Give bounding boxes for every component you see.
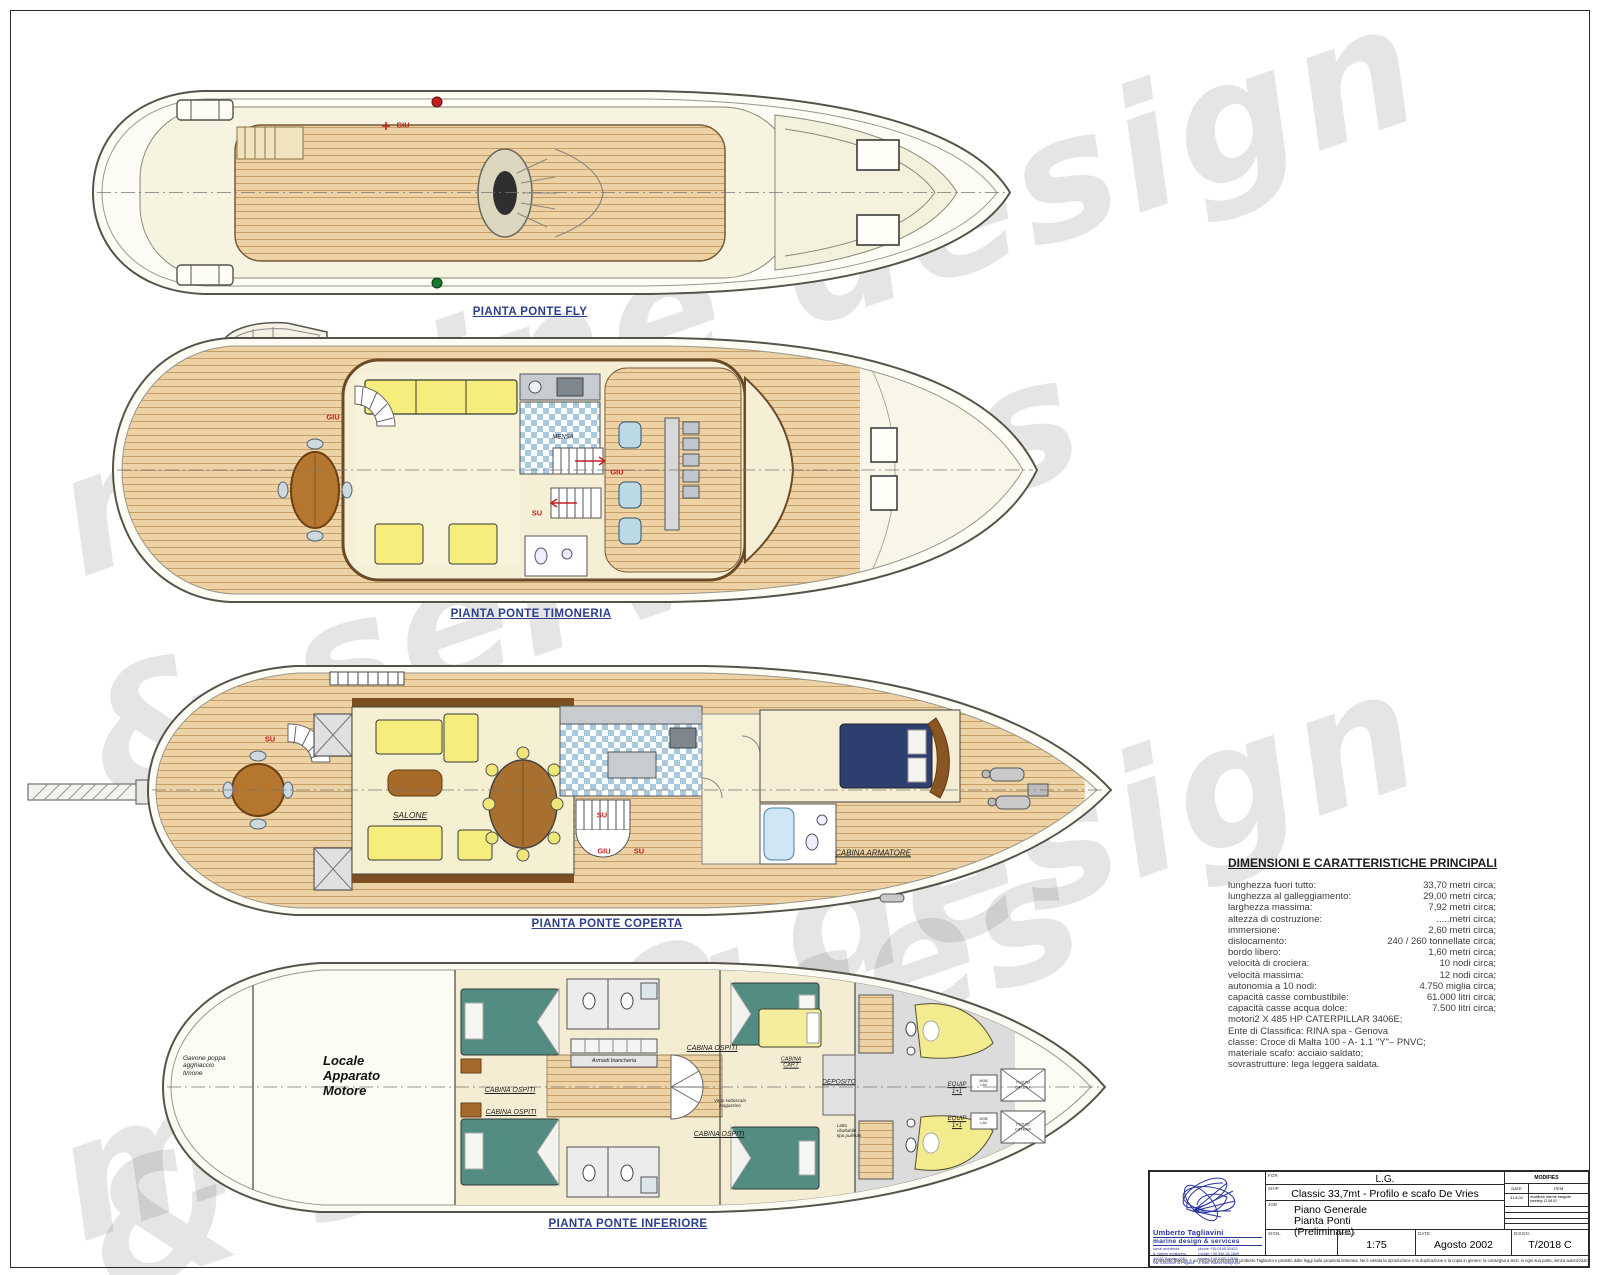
guest-cabin-label: CABINA OSPITI bbox=[687, 1045, 738, 1053]
captain-cabin-label: CABINA CAP.T bbox=[781, 1057, 801, 1070]
bathtub bbox=[764, 808, 794, 860]
date-value: Agosto 2002 bbox=[1416, 1230, 1511, 1251]
main-deck-graphic bbox=[140, 658, 1120, 923]
helm-chair bbox=[619, 482, 641, 508]
fly-bridge-cockpit bbox=[235, 125, 725, 261]
shower bbox=[641, 1177, 657, 1193]
copyright-fine-print: Il presente disegno è ad esclusiva propr… bbox=[1150, 1255, 1588, 1266]
logo-tagline: marine design & services bbox=[1153, 1238, 1262, 1246]
pillow bbox=[465, 1003, 483, 1039]
guest-cabin-label: CABINA OSPITI bbox=[485, 1087, 536, 1095]
dimensions-title: DIMENSIONI E CARATTERISTICHE PRINCIPALI bbox=[1228, 856, 1496, 870]
sign-cell: SIGN. bbox=[1266, 1230, 1338, 1255]
washbasin bbox=[817, 815, 827, 825]
stair-label-giu: GIU bbox=[396, 122, 409, 131]
stove bbox=[557, 378, 583, 396]
storage-label: DEPOSITO bbox=[822, 1078, 855, 1085]
logo-cell: Umberto Tagliavini marine design & servi… bbox=[1150, 1172, 1266, 1255]
date-cell: DATE Agosto 2002 bbox=[1416, 1230, 1512, 1255]
dimension-row: larghezza massima:7,92 metri circa; bbox=[1228, 902, 1496, 913]
shower bbox=[641, 983, 657, 999]
sink bbox=[529, 381, 541, 393]
crew-label: EQUIP 1+1 bbox=[948, 1116, 967, 1130]
roof-hatch bbox=[857, 215, 899, 245]
crew-bunk bbox=[859, 1121, 893, 1179]
toilet bbox=[906, 1138, 916, 1152]
pullman-berth-label: Letto ribaltabile tipo pullman bbox=[837, 1123, 861, 1139]
main-deck-plan: SU SU GIU SU SALONE CABINA ARMATORE bbox=[140, 658, 1120, 923]
guest-cabin-label: CABINA OSPITI bbox=[694, 1131, 745, 1139]
day-head bbox=[525, 536, 587, 576]
winch bbox=[996, 796, 1030, 809]
crew-bunk bbox=[859, 995, 893, 1053]
winch bbox=[990, 768, 1024, 781]
helm-chair bbox=[619, 518, 641, 544]
lower-deck-caption: PIANTA PONTE INFERIORE bbox=[549, 1218, 708, 1230]
dimension-row: dislocamento:240 / 260 tonnellate circa; bbox=[1228, 936, 1496, 947]
stair-label-su: SU bbox=[597, 812, 607, 821]
client-value: L.G. bbox=[1266, 1172, 1504, 1185]
coffee-table bbox=[388, 770, 442, 796]
dimension-row: lunghezza al galleggiamento:29,00 metri … bbox=[1228, 891, 1496, 902]
nautilus-logo-icon bbox=[1153, 1173, 1261, 1223]
stair-label-giu: GIU bbox=[326, 414, 339, 423]
master-cabin bbox=[760, 710, 960, 802]
nightstand bbox=[461, 1059, 481, 1073]
roof-hatch bbox=[857, 140, 899, 170]
stair-label-su: SU bbox=[265, 736, 275, 745]
washbasin bbox=[907, 1119, 915, 1127]
fly-deck-plan: GIU bbox=[85, 85, 1015, 300]
toilet bbox=[583, 993, 595, 1009]
galley-area bbox=[560, 706, 702, 796]
ship-cell: SHIP Classic 33,7mt - Profilo e scafo De… bbox=[1266, 1185, 1504, 1201]
starboard-navigation-light bbox=[432, 278, 442, 288]
dimension-row: capacità casse combustibile:61.000 litri… bbox=[1228, 992, 1496, 1003]
dimension-row: bordo libero:1,60 metri circa; bbox=[1228, 947, 1496, 958]
main-deck-caption: PIANTA PONTE COPERTA bbox=[532, 918, 683, 930]
drawing-sheet: marine design & services marine design &… bbox=[0, 0, 1600, 1275]
dimension-row: velocità massima:12 nodi circa; bbox=[1228, 970, 1496, 981]
dimensions-block: DIMENSIONI E CARATTERISTICHE PRINCIPALI … bbox=[1228, 856, 1496, 1070]
washbasin bbox=[907, 1047, 915, 1055]
pillow bbox=[465, 1133, 483, 1169]
pillow bbox=[799, 1141, 815, 1175]
dimension-notes: motori2 X 485 HP CATERPILLAR 3406E; Ente… bbox=[1228, 1014, 1496, 1070]
mess-label: MENSA bbox=[552, 435, 573, 442]
fly-deck-caption: PIANTA PONTE FLY bbox=[473, 306, 588, 318]
railing bbox=[330, 672, 404, 685]
pillow bbox=[923, 1133, 939, 1153]
helm-chair bbox=[619, 422, 641, 448]
dimension-row: capacità casse acqua dolce:7.500 litri c… bbox=[1228, 1003, 1496, 1014]
salon-area bbox=[352, 698, 574, 883]
modification-row: 31.8.02 modifiche interne eseguite meeti… bbox=[1505, 1194, 1588, 1207]
console bbox=[665, 418, 679, 530]
guest-cabin-label: CABINA OSPITI bbox=[486, 1109, 537, 1117]
stair-label-giu: GIU bbox=[597, 848, 610, 857]
nightstand bbox=[461, 1103, 481, 1117]
chain-locker-label: POZZO CATENA bbox=[1015, 1122, 1031, 1131]
cleat bbox=[880, 894, 904, 902]
wheelhouse-deck-plan: GIU GIU SU MENSA bbox=[105, 330, 1045, 610]
stair-label-giu: GIU bbox=[610, 469, 623, 478]
stair-label-su: SU bbox=[532, 510, 542, 519]
stove bbox=[670, 728, 696, 748]
dimension-row: velocità di crociera:10 nodi circa; bbox=[1228, 958, 1496, 969]
scale-cell: SCALE 1:75 bbox=[1338, 1230, 1416, 1255]
toilet bbox=[621, 1165, 633, 1181]
armchair bbox=[449, 524, 497, 564]
modifies-table: MODIFIES DATE ITEM 31.8.02 modifiche int… bbox=[1504, 1172, 1588, 1229]
owner-cabin-label: CABINA ARMATORE bbox=[835, 848, 911, 857]
dimension-row: lunghezza fuori tutto:33,70 metri circa; bbox=[1228, 880, 1496, 891]
lower-deck-graphic bbox=[155, 955, 1115, 1220]
drawing-number-cell: DISGN. T/2018 C bbox=[1512, 1230, 1588, 1255]
dimension-row: autonomia a 10 nodi:4.750 miglia circa; bbox=[1228, 981, 1496, 992]
pillow bbox=[908, 730, 926, 754]
engine-room-label: Locale Apparato Motore bbox=[323, 1053, 380, 1098]
pillow bbox=[807, 1013, 819, 1043]
wheelhouse-deck-caption: PIANTA PONTE TIMONERIA bbox=[451, 608, 612, 620]
salon-label: SALONE bbox=[393, 811, 428, 821]
pillow bbox=[908, 758, 926, 782]
sofa bbox=[368, 826, 442, 860]
sofa bbox=[376, 720, 442, 754]
ship-value: Classic 33,7mt - Profilo e scafo De Vrie… bbox=[1266, 1185, 1504, 1200]
toilet bbox=[583, 1165, 595, 1181]
stern-peak-label: Gavone poppa agghiaccio timone bbox=[183, 1055, 226, 1077]
toilet bbox=[806, 834, 818, 850]
fly-stairs bbox=[237, 127, 303, 159]
dimension-row: altezza di costruzione:.....metri circa; bbox=[1228, 914, 1496, 925]
port-navigation-light bbox=[432, 97, 442, 107]
sofa bbox=[444, 714, 478, 762]
toilet bbox=[621, 993, 633, 1009]
lobby-corridor bbox=[702, 714, 760, 864]
armchair bbox=[375, 524, 423, 564]
toilet bbox=[906, 1022, 916, 1036]
understairs-label: Vano sottoscala magazzino bbox=[714, 1098, 746, 1108]
fly-deck-graphic bbox=[85, 85, 1015, 300]
washbasin bbox=[562, 549, 572, 559]
lower-deck-plan: Gavone poppa agghiaccio timone Locale Ap… bbox=[155, 955, 1115, 1220]
for-cell: FOR L.G. bbox=[1266, 1172, 1504, 1185]
master-bathroom bbox=[760, 804, 836, 864]
toilet bbox=[535, 548, 547, 564]
galley-island bbox=[608, 752, 656, 778]
stair-label-su: SU bbox=[634, 848, 644, 857]
pillow bbox=[923, 1021, 939, 1041]
crew-label: EQUIP 1+1 bbox=[948, 1082, 967, 1096]
title-block: Umberto Tagliavini marine design & servi… bbox=[1148, 1170, 1590, 1268]
linen-label: Armadi biancheria bbox=[592, 1058, 636, 1064]
cabinet-label: MOB. LAV. bbox=[980, 1079, 989, 1087]
wheelhouse-deck-graphic bbox=[105, 330, 1045, 610]
chain-locker-label: POZZO CATENA bbox=[1015, 1080, 1031, 1089]
cabinet-label: MOB. LAV. bbox=[980, 1117, 989, 1125]
logo-name: Umberto Tagliavini bbox=[1153, 1228, 1262, 1238]
dimension-row: immersione:2,60 metri circa; bbox=[1228, 925, 1496, 936]
